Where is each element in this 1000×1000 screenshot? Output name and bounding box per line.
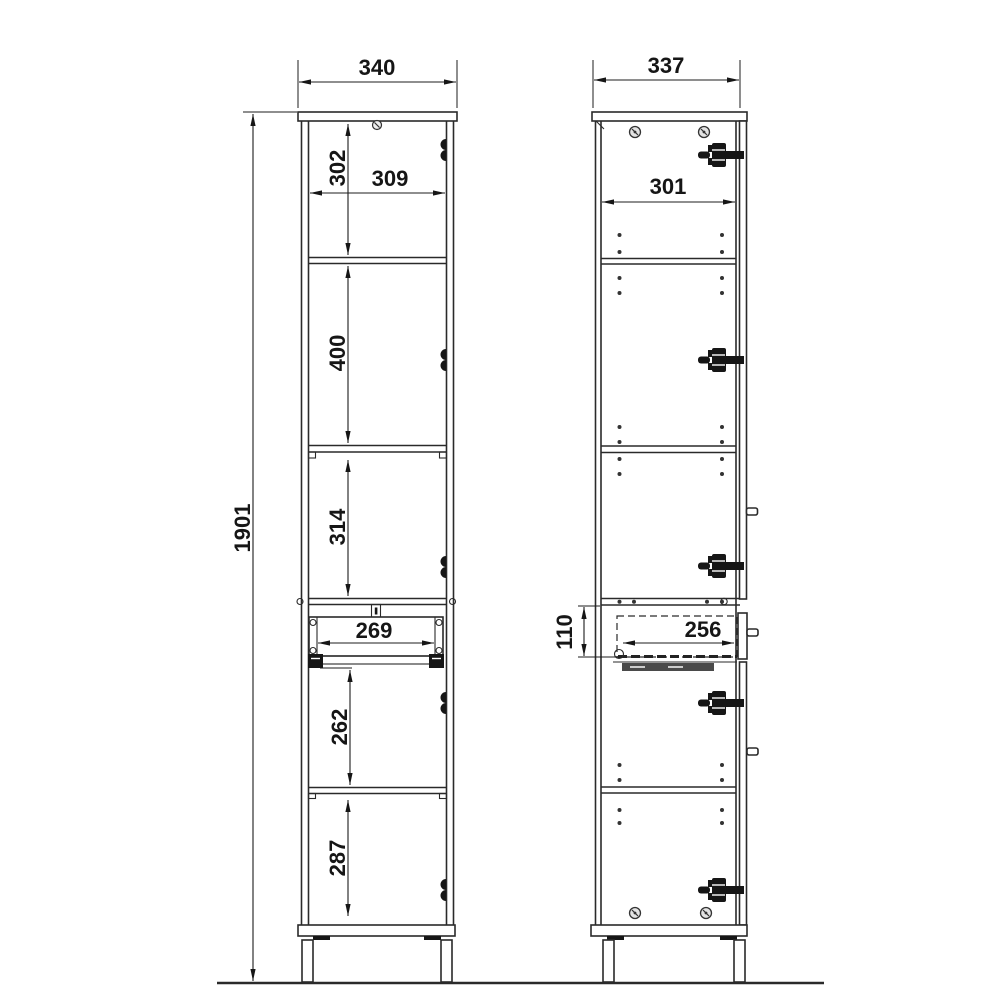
drawer-knob bbox=[747, 629, 758, 636]
dim-label-inner-depth: 301 bbox=[650, 174, 687, 199]
dim-label-inner-width: 309 bbox=[372, 166, 409, 191]
side-bottom bbox=[591, 925, 747, 982]
lower-door-knob bbox=[747, 748, 758, 755]
dim-label-third-compartment: 314 bbox=[325, 508, 350, 545]
dim-label-bottom-compartment: 287 bbox=[325, 840, 350, 877]
drawer-slide-left bbox=[308, 654, 323, 668]
side-screws bbox=[630, 127, 712, 919]
dim-label-overall-width: 340 bbox=[359, 55, 396, 80]
front-divider-above-drawer bbox=[297, 599, 456, 618]
drawer-front-profile bbox=[738, 613, 747, 659]
front-bottom-panel bbox=[298, 925, 455, 936]
shelf-pin-holes bbox=[618, 233, 725, 825]
side-view: 337 301 110 256 bbox=[552, 53, 758, 982]
drawer-slide-right bbox=[429, 654, 444, 668]
dim-label-drawer-depth: 256 bbox=[685, 617, 722, 642]
side-drawer-hidden bbox=[613, 613, 747, 671]
side-shelf-1 bbox=[601, 259, 736, 265]
screw-icon-top bbox=[373, 121, 382, 130]
side-shelf-4 bbox=[601, 787, 736, 793]
front-view: 340 1901 302 309 400 314 269 262 287 bbox=[230, 55, 457, 982]
drawer-rail bbox=[322, 656, 430, 664]
side-bottom-panel bbox=[591, 925, 747, 936]
side-shelf-2 bbox=[601, 446, 736, 453]
side-back-panel bbox=[596, 121, 602, 925]
side-divider bbox=[601, 598, 740, 605]
technical-drawing-page: 340 1901 302 309 400 314 269 262 287 bbox=[0, 0, 1000, 1000]
side-top-panel bbox=[592, 112, 747, 121]
dim-label-fourth-compartment: 262 bbox=[327, 709, 352, 746]
front-bottom bbox=[298, 925, 455, 982]
front-carcass bbox=[297, 112, 457, 982]
foot-mount-right bbox=[424, 936, 441, 940]
dim-label-top-compartment: 302 bbox=[325, 150, 350, 187]
front-leg-right bbox=[441, 940, 452, 982]
dim-label-drawer-height: 110 bbox=[552, 614, 577, 650]
side-leg-left bbox=[603, 940, 614, 982]
knobs bbox=[747, 508, 759, 755]
front-leg-left bbox=[302, 940, 313, 982]
upper-door-knob bbox=[747, 508, 758, 515]
side-corner-joint bbox=[596, 121, 604, 129]
front-top-panel bbox=[298, 112, 457, 121]
front-dimension-lines bbox=[243, 60, 457, 981]
side-hinges bbox=[698, 143, 744, 902]
foot-mount-left bbox=[313, 936, 330, 940]
front-shelf-1 bbox=[309, 258, 447, 264]
cam-screw-right bbox=[450, 599, 456, 605]
dim-label-overall-depth: 337 bbox=[648, 53, 685, 78]
dim-label-second-compartment: 400 bbox=[325, 335, 350, 372]
front-shelf-2 bbox=[309, 446, 447, 459]
dim-label-drawer-width: 269 bbox=[356, 618, 393, 643]
front-shelf-4 bbox=[309, 788, 447, 799]
dim-label-overall-height: 1901 bbox=[230, 504, 255, 553]
side-leg-right bbox=[734, 940, 745, 982]
cabinet-dimension-drawing: 340 1901 302 309 400 314 269 262 287 bbox=[0, 0, 1000, 1000]
side-carcass bbox=[591, 112, 758, 982]
